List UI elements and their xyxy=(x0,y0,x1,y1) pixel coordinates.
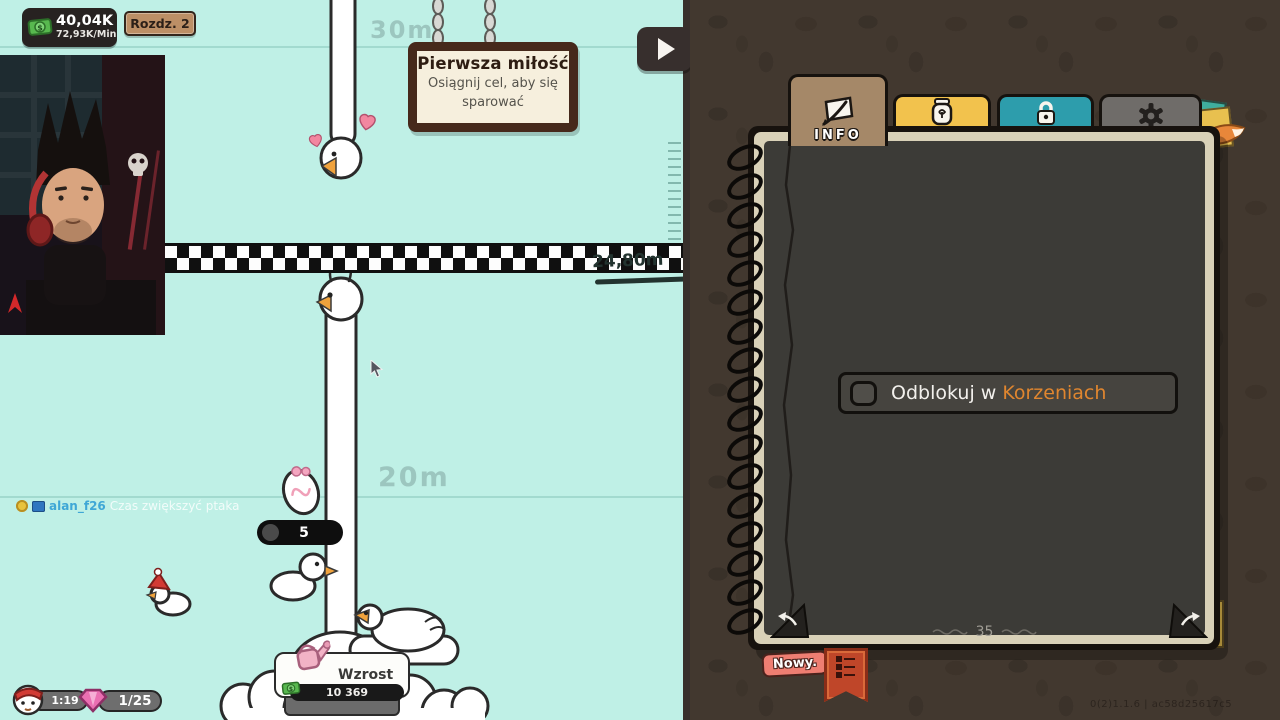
neck-counter-value: 5 xyxy=(279,525,329,541)
watering-can-icon xyxy=(283,634,335,679)
next-page-corner[interactable] xyxy=(1168,603,1208,639)
webcam-overlay xyxy=(0,55,165,335)
jar-icon xyxy=(929,98,955,126)
tab-info[interactable]: INFO xyxy=(788,74,888,146)
svg-text:$: $ xyxy=(289,686,293,693)
bookmark-ribbon[interactable] xyxy=(824,648,868,702)
play-button[interactable] xyxy=(637,27,690,71)
growth-cost: 10 369 xyxy=(326,686,368,699)
goose-top xyxy=(321,0,361,178)
spiral-binding xyxy=(726,146,776,636)
play-icon xyxy=(658,38,675,60)
growth-label: Wzrost xyxy=(338,667,393,683)
game-area: 30m 20m xyxy=(0,0,690,720)
money-counter: $ 40,04K 72,93K/Min xyxy=(22,8,117,47)
notebook-panel: INFO DNA ODBLOKUJ xyxy=(690,0,1280,720)
unlock-checkbox[interactable] xyxy=(850,381,877,406)
svg-text:$: $ xyxy=(37,24,43,33)
squiggle-right xyxy=(1001,628,1037,636)
chat-text: Czas zwiększyć ptaka xyxy=(110,499,240,513)
goal-sign-line1: Osiągnij cel, aby się xyxy=(428,76,558,91)
mouse-cursor xyxy=(370,360,384,378)
chat-message-row: alan_f26 Czas zwiększyć ptaka xyxy=(16,499,240,513)
unlock-location-link[interactable]: Korzeniach xyxy=(1002,382,1106,404)
goal-sign: Pierwsza miłość Osiągnij cel, aby się sp… xyxy=(408,42,578,132)
neck-counter: 5 xyxy=(257,520,343,545)
build-version: 0(2)1.1.6 | ac58d25617c5 xyxy=(1090,699,1232,710)
prev-page-corner[interactable] xyxy=(770,603,810,639)
page-number: 35 xyxy=(976,624,994,640)
duck-santa xyxy=(147,569,190,616)
sign-chain-left xyxy=(430,0,446,46)
santa-duck-icon xyxy=(12,682,46,718)
sign-chain-right xyxy=(482,0,498,46)
chat-username: alan_f26 xyxy=(49,499,106,513)
chat-badge-icon xyxy=(16,500,28,512)
ruler-ticks xyxy=(668,142,681,245)
chat-subscriber-icon xyxy=(32,501,45,512)
list-icon xyxy=(836,656,856,680)
screen: 30m 20m xyxy=(0,0,1280,720)
money-icon: $ xyxy=(280,680,302,698)
neck-counter-icon xyxy=(262,524,279,541)
money-icon: $ xyxy=(27,16,53,40)
squiggle-left xyxy=(932,628,968,636)
money-value: 40,04K xyxy=(56,14,116,30)
quill-paper-icon xyxy=(818,94,858,128)
game-right-edge xyxy=(683,0,690,720)
torn-page-edge xyxy=(778,145,802,631)
chapter-badge: Rozdz. 2 xyxy=(124,11,196,36)
tab-info-label: INFO xyxy=(814,128,862,143)
egg-decoration xyxy=(277,462,324,518)
growth-upgrade: Wzrost 10 369 $ xyxy=(268,646,416,720)
goal-sign-title: Pierwsza miłość xyxy=(417,54,569,73)
new-badge: Nowy. xyxy=(761,650,828,677)
unlock-requirement-bar: Odblokuj w Korzeniach xyxy=(838,372,1178,414)
unlock-text: Odblokuj w xyxy=(891,382,1002,404)
money-rate: 72,93K/Min xyxy=(56,30,116,40)
padlock-icon xyxy=(1033,100,1059,127)
height-record-label: 24,80m xyxy=(592,250,664,272)
gem-icon xyxy=(78,684,108,714)
goal-sign-line2: sparować xyxy=(462,95,524,110)
page-footer: 35 xyxy=(764,624,1205,640)
